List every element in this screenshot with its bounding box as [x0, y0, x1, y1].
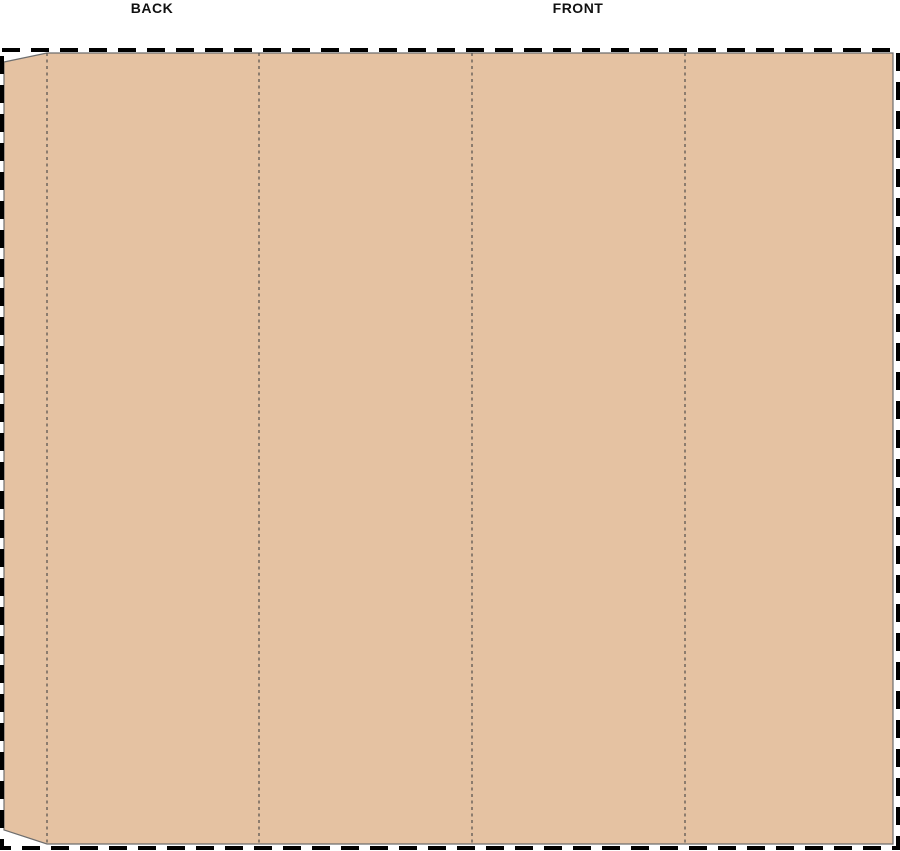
dieline-drawing	[0, 0, 900, 851]
template-panel-shape	[4, 53, 893, 844]
box-template-canvas: BACK FRONT	[0, 0, 900, 851]
